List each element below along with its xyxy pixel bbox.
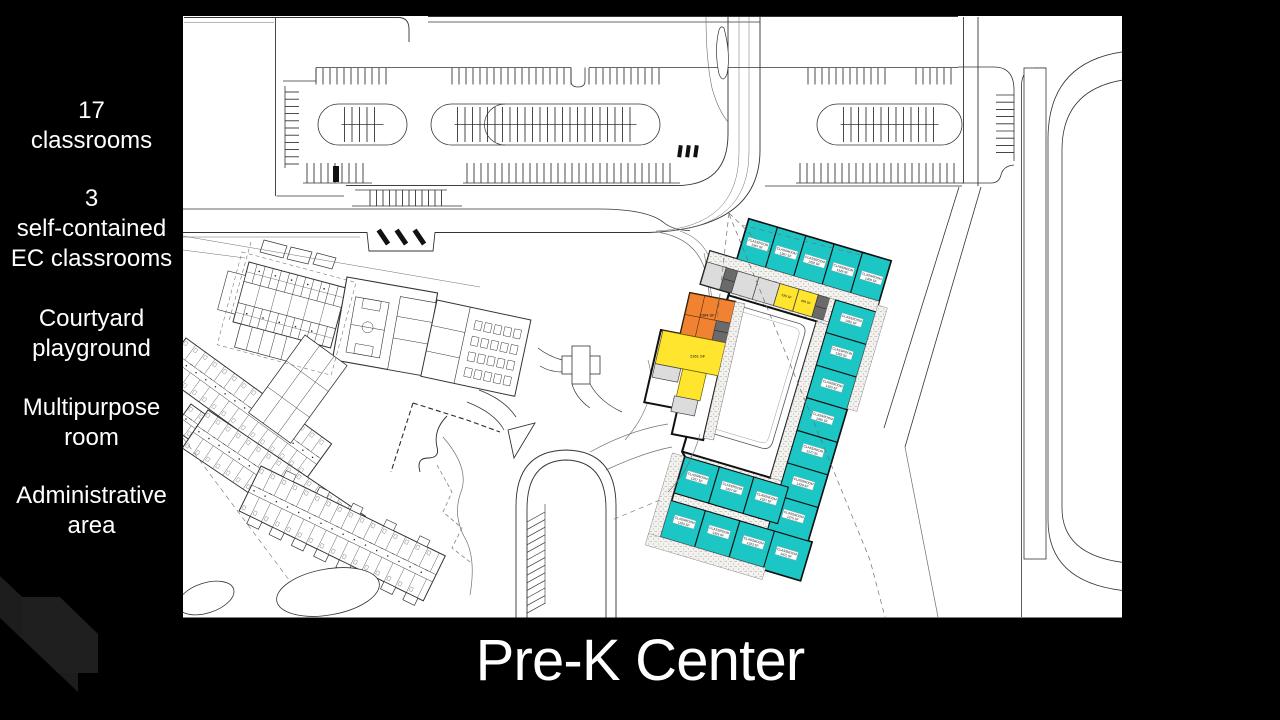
svg-text:2361 SF: 2361 SF [690, 354, 706, 359]
svg-text:2364 SF: 2364 SF [700, 313, 716, 318]
